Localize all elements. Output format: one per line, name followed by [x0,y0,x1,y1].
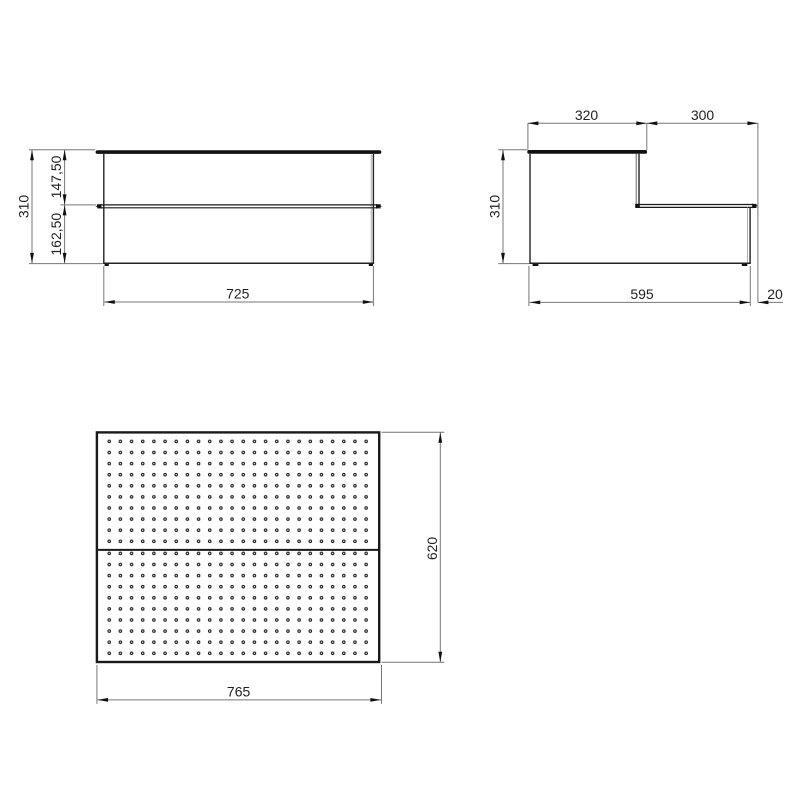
svg-text:162,50: 162,50 [48,213,64,256]
svg-text:620: 620 [424,537,440,561]
svg-text:595: 595 [630,286,654,302]
svg-text:20: 20 [767,286,783,302]
svg-text:320: 320 [575,107,599,123]
svg-text:765: 765 [227,684,251,700]
svg-text:725: 725 [226,286,250,302]
svg-text:310: 310 [487,195,503,219]
svg-text:147,50: 147,50 [48,155,64,198]
svg-text:300: 300 [691,107,715,123]
svg-text:310: 310 [16,195,32,219]
